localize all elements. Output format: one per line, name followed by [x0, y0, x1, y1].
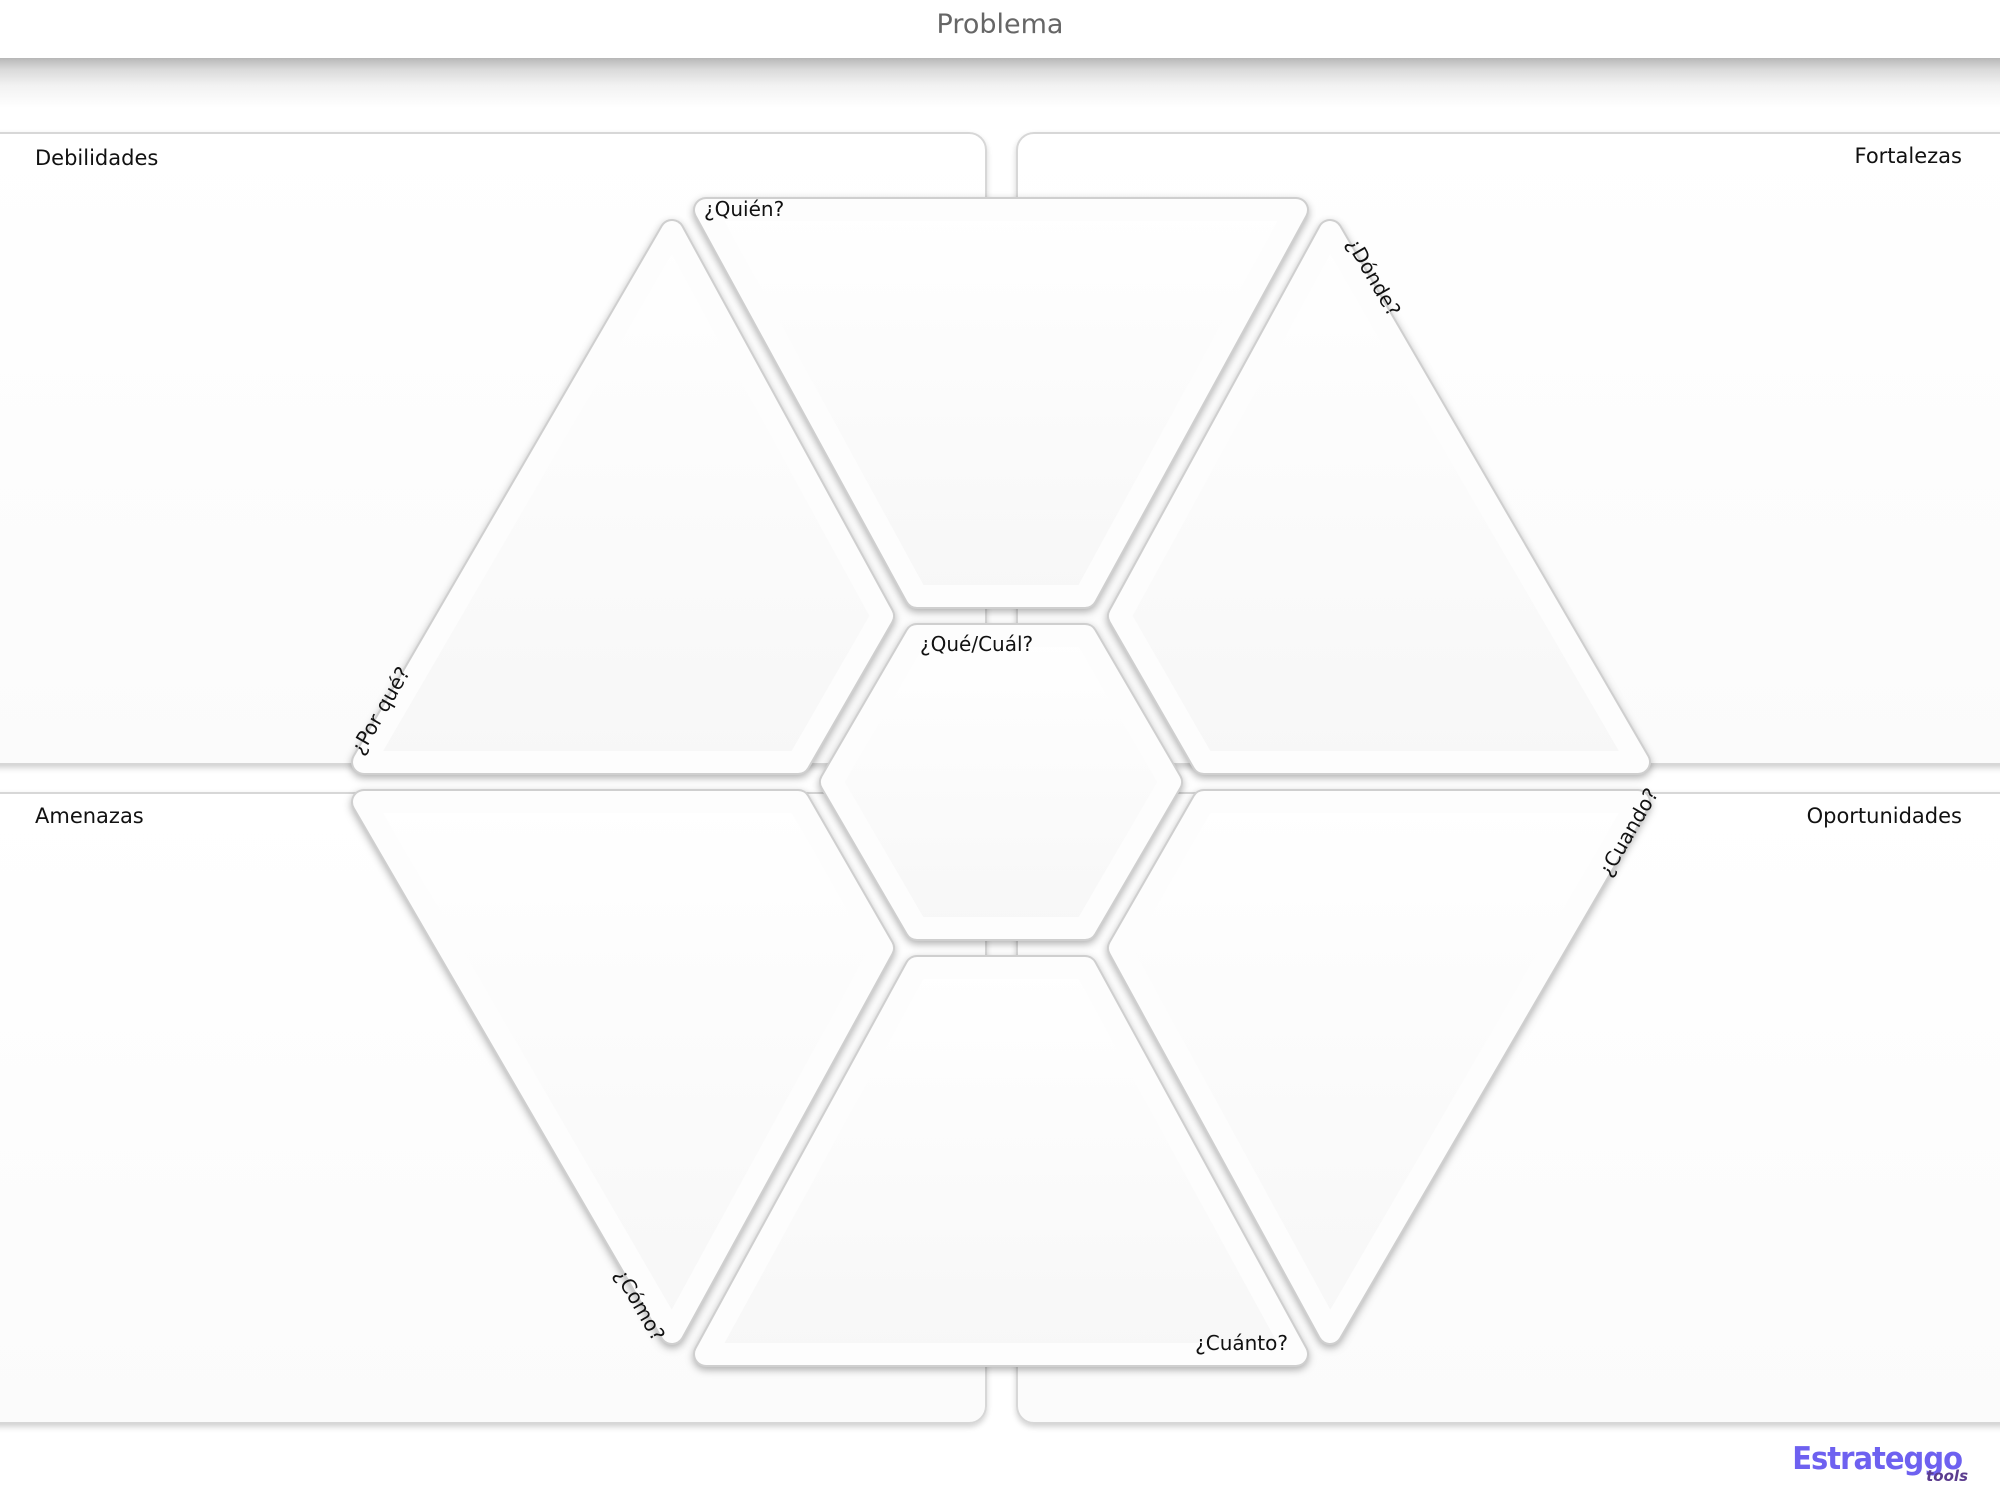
brand-suffix: tools — [1926, 1467, 1968, 1485]
section-label-cuanto: ¿Cuánto? — [1195, 1331, 1288, 1355]
hexagon-diagram: ¿Quién? ¿Dónde? ¿Cuando? ¿Cuánto? ¿Cómo?… — [0, 0, 2000, 1500]
section-label-quien: ¿Quién? — [704, 197, 784, 221]
brand-logo: Estrateggo tools — [1808, 1441, 1968, 1493]
section-que-cual[interactable]: ¿Qué/Cuál? — [832, 632, 1170, 928]
section-label-que-cual: ¿Qué/Cuál? — [920, 632, 1033, 656]
section-que-cual-face[interactable] — [832, 636, 1170, 928]
